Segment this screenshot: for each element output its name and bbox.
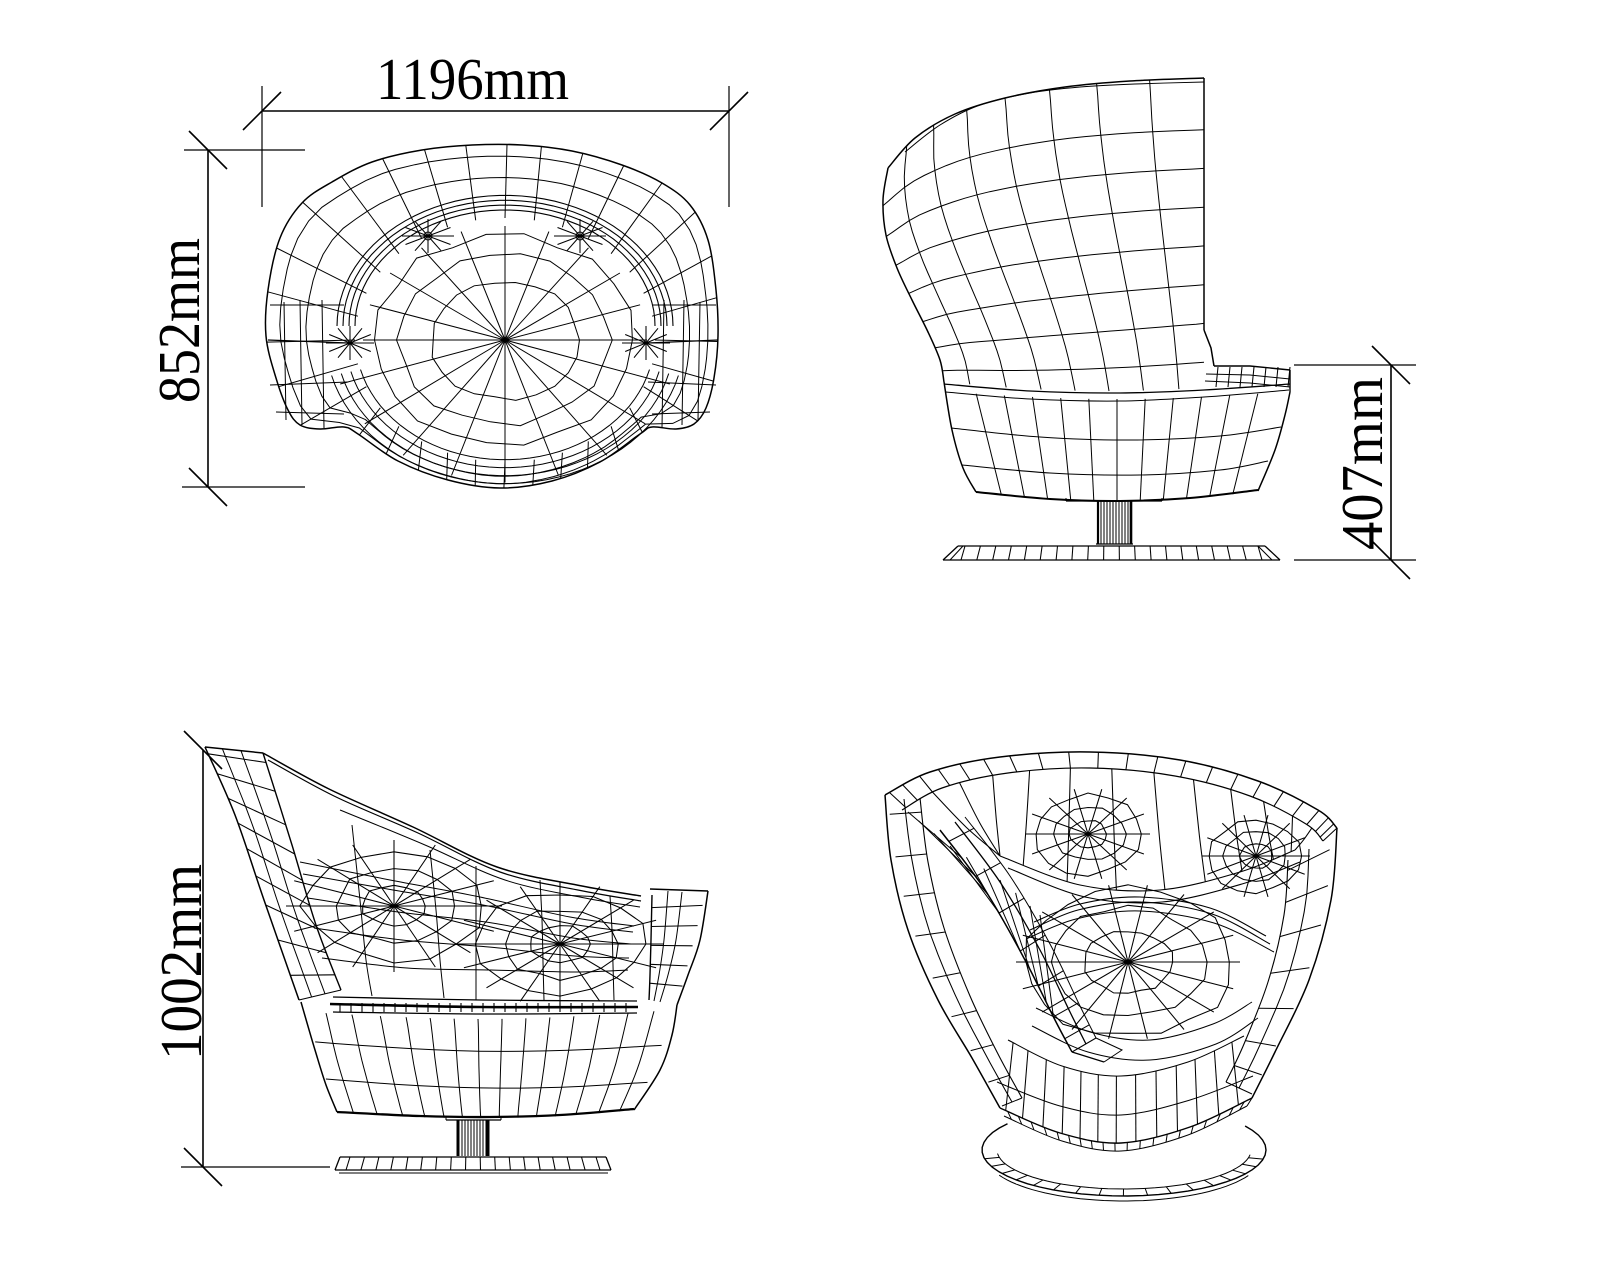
svg-text:1196mm: 1196mm <box>376 46 569 112</box>
svg-text:407mm: 407mm <box>1329 377 1395 550</box>
svg-text:852mm: 852mm <box>146 238 212 403</box>
svg-text:1002mm: 1002mm <box>148 864 214 1060</box>
